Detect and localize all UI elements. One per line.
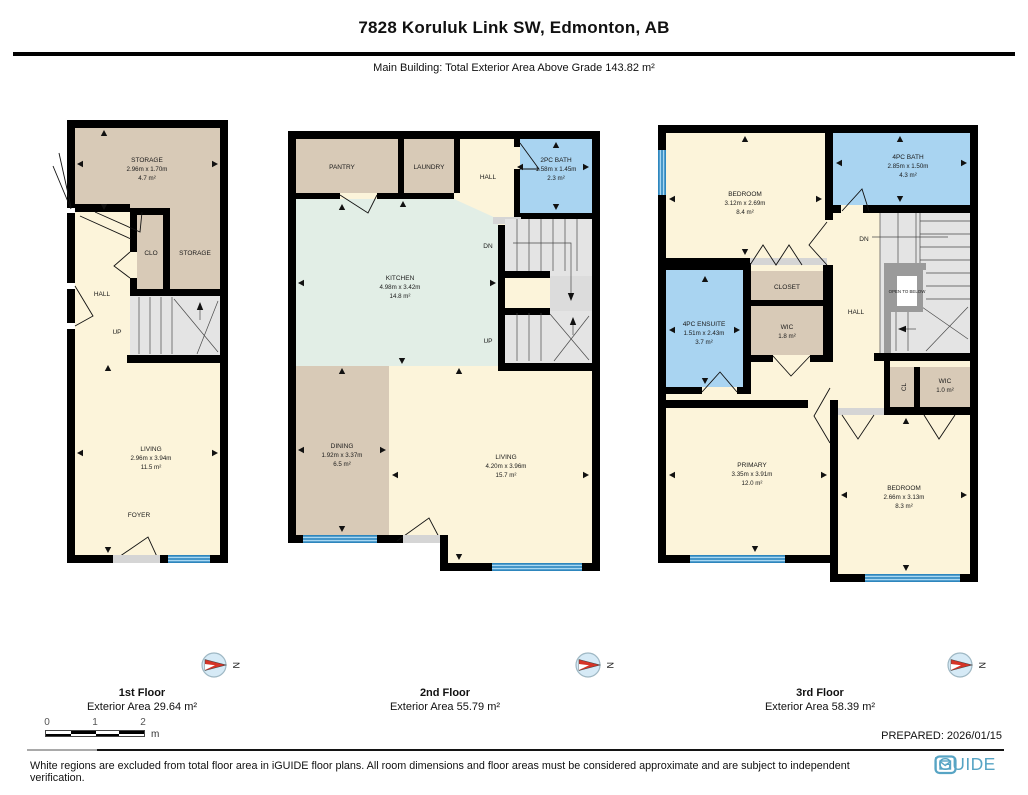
floor1-walls-and-rooms <box>67 120 228 563</box>
label-f1-hall: HALL <box>94 291 111 298</box>
compass-north-label: N <box>231 662 241 669</box>
floor2-name: 2nd Floor <box>335 686 555 700</box>
scale-bar: 0 1 2 m <box>45 717 225 747</box>
label-f3-hall: HALL <box>848 309 865 316</box>
scale-tick-2: 2 <box>137 717 149 728</box>
label-f3-bedroom1-area: 8.4 m² <box>736 209 754 216</box>
label-f1-up: UP <box>112 329 121 336</box>
label-f2-kitchen-dims: 4.98m x 3.42m <box>380 284 421 291</box>
page-title: 7828 Koruluk Link SW, Edmonton, AB <box>0 18 1028 38</box>
label-f2-bath-dims: 1.58m x 1.45m <box>536 166 577 173</box>
floor2-caption: 2nd Floor Exterior Area 55.79 m² <box>335 686 555 714</box>
scale-tick-0: 0 <box>41 717 53 728</box>
label-f2-laundry: LAUNDRY <box>414 164 446 171</box>
compass-north-label: N <box>605 662 615 669</box>
label-f1-storage-dims: 2.96m x 1.70m <box>127 166 168 173</box>
label-f2-dn: DN <box>483 243 493 250</box>
label-f2-dining-dims: 1.92m x 3.37m <box>322 452 363 459</box>
label-f1-living-name: LIVING <box>140 446 161 453</box>
label-f2-kitchen-name: KITCHEN <box>386 275 415 282</box>
floor2-entry-sill <box>403 535 440 543</box>
label-f3-bath-area: 4.3 m² <box>899 172 917 179</box>
label-f2-up: UP <box>483 338 492 345</box>
label-f3-ensuite-dims: 1.51m x 2.43m <box>684 330 725 337</box>
compass-icon: N <box>573 650 619 680</box>
label-f1-storage2: STORAGE <box>179 250 211 257</box>
label-f3-bedroom1-dims: 3.12m x 2.69m <box>725 200 766 207</box>
label-f2-living-area: 15.7 m² <box>496 472 517 479</box>
floor2-walls-and-rooms <box>288 131 600 571</box>
label-f3-ensuite-area: 3.7 m² <box>695 339 713 346</box>
floor1-name: 1st Floor <box>32 686 252 700</box>
footer-rule <box>27 749 1004 751</box>
label-f3-primary-name: PRIMARY <box>737 462 767 469</box>
iguide-logo: iGUIDE <box>934 754 996 775</box>
label-f3-dn: DN <box>859 236 869 243</box>
scale-bar-graphic <box>45 730 145 737</box>
floorplan-2nd-floor: PANTRY LAUNDRY HALL 2PC BATH 1.58m x 1.4… <box>272 115 616 587</box>
label-f1-living-area: 11.5 m² <box>141 464 162 471</box>
floorplan-3rd-floor: BEDROOM 3.12m x 2.69m 8.4 m² 4PC BATH 2.… <box>642 109 994 598</box>
label-f3-open-to-below: OPEN TO BELOW <box>889 289 927 294</box>
floor1-caption: 1st Floor Exterior Area 29.64 m² <box>32 686 252 714</box>
compass-north-label: N <box>977 662 987 669</box>
label-f1-living-dims: 2.96m x 3.94m <box>131 455 172 462</box>
floor3-walls-and-rooms <box>658 125 978 582</box>
footer-rule-accent <box>27 749 97 751</box>
page-subtitle: Main Building: Total Exterior Area Above… <box>0 62 1028 74</box>
prepared-date: PREPARED: 2026/01/15 <box>881 730 1002 742</box>
label-f2-kitchen-area: 14.8 m² <box>390 293 411 300</box>
scale-unit: m <box>151 729 159 740</box>
compass-icon: N <box>945 650 991 680</box>
floor3-area: Exterior Area 58.39 m² <box>710 700 930 714</box>
label-f2-dining-area: 6.5 m² <box>333 461 351 468</box>
label-f3-bath-name: 4PC BATH <box>892 154 924 161</box>
label-f2-pantry: PANTRY <box>329 164 355 171</box>
floorplan-1st-floor: STORAGE 2.96m x 1.70m 4.7 m² CLO STORAGE… <box>51 104 244 579</box>
label-f2-living-dims: 4.20m x 3.96m <box>486 463 527 470</box>
disclaimer-text: White regions are excluded from total fl… <box>30 760 880 784</box>
compass-icon: N <box>199 650 245 680</box>
label-f3-wic1-area: 1.8 m² <box>778 333 796 340</box>
floor2-area: Exterior Area 55.79 m² <box>335 700 555 714</box>
label-f2-hall: HALL <box>480 174 497 181</box>
floor1-entry-sill <box>113 555 160 563</box>
label-f1-foyer: FOYER <box>128 512 151 519</box>
label-f1-clo: CLO <box>144 250 157 257</box>
label-f2-bath-name: 2PC BATH <box>540 157 572 164</box>
label-f1-storage-area: 4.7 m² <box>138 175 156 182</box>
label-f3-bedroom2-dims: 2.66m x 3.13m <box>884 494 925 501</box>
floor3-name: 3rd Floor <box>710 686 930 700</box>
label-f3-primary-dims: 3.35m x 3.91m <box>732 471 773 478</box>
label-f3-bedroom1-name: BEDROOM <box>728 191 762 198</box>
label-f2-living-name: LIVING <box>495 454 516 461</box>
label-f2-bath-area: 2.3 m² <box>547 175 565 182</box>
label-f3-cl: CL <box>901 382 908 391</box>
floor1-window <box>168 555 210 563</box>
header-rule <box>13 52 1015 56</box>
label-f3-bedroom2-area: 8.3 m² <box>895 503 913 510</box>
label-f3-wic2-name: WIC <box>939 378 952 385</box>
scale-tick-1: 1 <box>89 717 101 728</box>
label-f3-closet: CLOSET <box>774 284 800 291</box>
label-f3-bedroom2-name: BEDROOM <box>887 485 921 492</box>
floor3-caption: 3rd Floor Exterior Area 58.39 m² <box>710 686 930 714</box>
label-f3-ensuite-name: 4PC ENSUITE <box>683 321 726 328</box>
iguide-logo-icon <box>934 754 958 776</box>
label-f3-primary-area: 12.0 m² <box>742 480 763 487</box>
label-f3-bath-dims: 2.85m x 1.50m <box>888 163 929 170</box>
label-f1-storage-name: STORAGE <box>131 157 163 164</box>
label-f3-wic1-name: WIC <box>781 324 794 331</box>
label-f3-wic2-area: 1.0 m² <box>936 387 954 394</box>
label-f2-dining-name: DINING <box>331 443 354 450</box>
floor1-area: Exterior Area 29.64 m² <box>32 700 252 714</box>
